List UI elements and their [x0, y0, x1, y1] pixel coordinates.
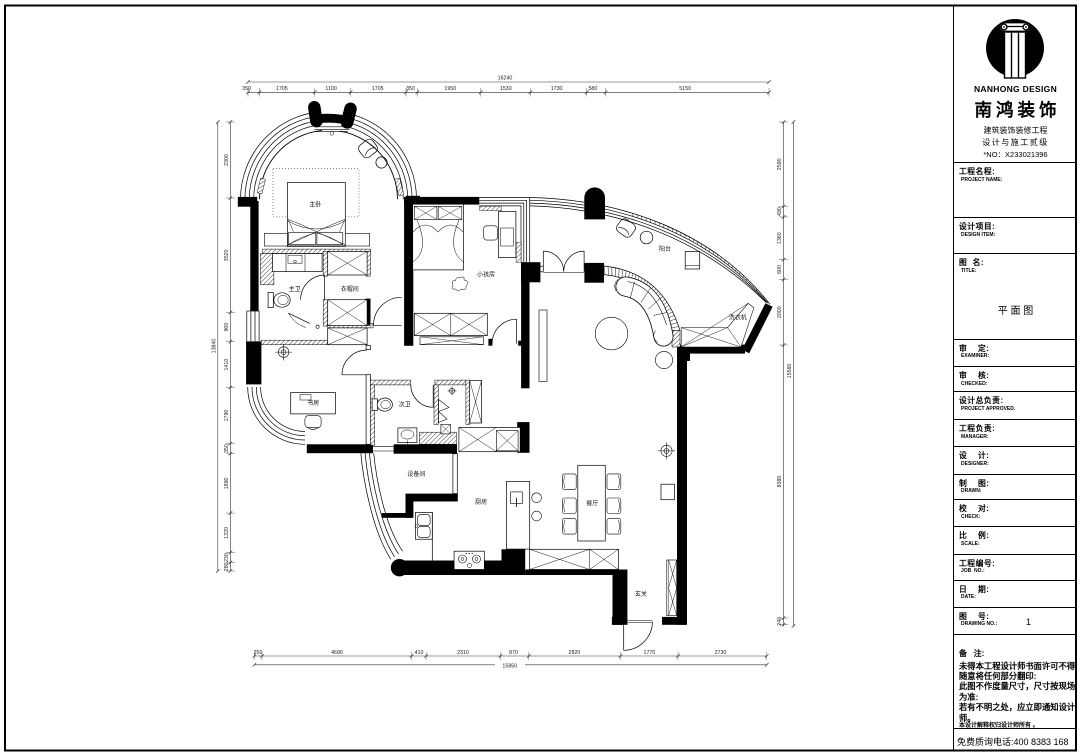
svg-text:洗衣机: 洗衣机	[729, 314, 747, 322]
svg-text:15560: 15560	[787, 364, 793, 379]
svg-text:阳台: 阳台	[659, 245, 671, 253]
svg-text:870: 870	[509, 650, 518, 656]
svg-text:主卫: 主卫	[289, 285, 301, 293]
svg-text:900: 900	[224, 323, 230, 332]
svg-text:2590: 2590	[777, 158, 783, 170]
svg-text:1770: 1770	[644, 650, 656, 656]
svg-text:16240: 16240	[498, 76, 513, 82]
svg-text:3520: 3520	[224, 249, 230, 261]
svg-text:1530: 1530	[500, 86, 512, 92]
svg-text:490: 490	[777, 207, 783, 216]
svg-text:1410: 1410	[224, 359, 230, 371]
svg-text:410: 410	[415, 650, 424, 656]
svg-text:1790: 1790	[224, 410, 230, 422]
svg-text:2000: 2000	[777, 306, 783, 318]
svg-text:8380: 8380	[777, 476, 783, 488]
svg-text:250: 250	[254, 650, 263, 656]
svg-text:厨房: 厨房	[475, 498, 487, 506]
svg-text:580: 580	[588, 86, 597, 92]
svg-text:主卧: 主卧	[309, 201, 321, 209]
svg-text:230: 230	[224, 553, 230, 562]
svg-text:4690: 4690	[331, 650, 343, 656]
svg-text:玄关: 玄关	[635, 590, 647, 598]
svg-text:600: 600	[777, 265, 783, 274]
svg-text:1705: 1705	[276, 86, 288, 92]
svg-text:2730: 2730	[715, 650, 727, 656]
svg-text:280: 280	[224, 562, 230, 571]
svg-text:1890: 1890	[224, 477, 230, 489]
svg-text:1950: 1950	[444, 86, 456, 92]
svg-text:240: 240	[777, 617, 783, 626]
svg-text:1100: 1100	[325, 86, 336, 92]
svg-text:350: 350	[242, 86, 251, 92]
svg-text:2300: 2300	[224, 154, 230, 166]
svg-text:小孩房: 小孩房	[477, 271, 495, 279]
svg-text:设备间: 设备间	[407, 470, 425, 478]
svg-text:餐厅: 餐厅	[586, 500, 598, 508]
svg-text:5150: 5150	[679, 86, 691, 92]
svg-text:1360: 1360	[777, 232, 783, 244]
svg-text:衣帽间: 衣帽间	[341, 285, 359, 293]
svg-text:1220: 1220	[224, 527, 230, 539]
svg-text:350: 350	[406, 86, 415, 92]
svg-text:13840: 13840	[211, 339, 217, 354]
svg-text:350: 350	[224, 444, 230, 453]
svg-text:次卫: 次卫	[399, 400, 411, 408]
svg-text:1730: 1730	[551, 86, 563, 92]
svg-text:2820: 2820	[569, 650, 581, 656]
svg-text:1705: 1705	[372, 86, 384, 92]
svg-text:2310: 2310	[457, 650, 469, 656]
svg-text:书房: 书房	[307, 399, 319, 407]
svg-text:15850: 15850	[502, 663, 517, 669]
